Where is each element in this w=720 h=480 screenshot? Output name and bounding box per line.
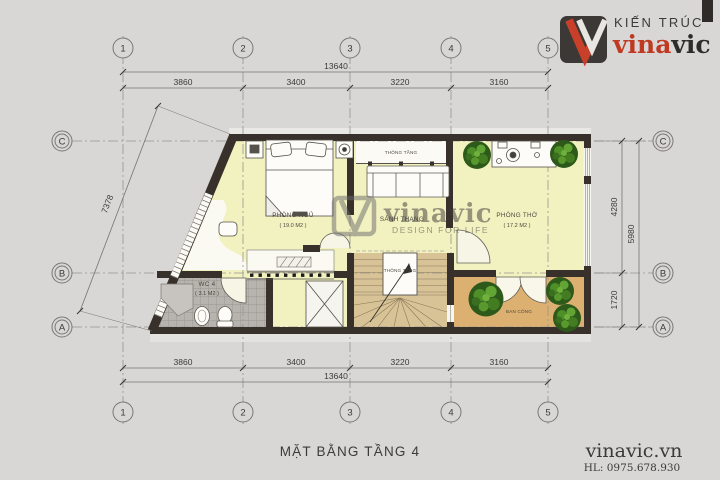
worship-area: ( 17.2 M2 ) — [503, 223, 530, 229]
wc-area: ( 3.1 M2 ) — [195, 291, 219, 297]
dim-total-top: 13640 — [324, 61, 348, 71]
toilet — [217, 307, 233, 328]
grid-col-5-top: 5 — [545, 44, 550, 55]
grid-row-c-right: C — [660, 137, 667, 148]
void-strip-railing — [356, 162, 446, 166]
footer-website: vinavic.vn — [585, 440, 683, 462]
nightstand-left — [246, 141, 263, 158]
grid-col-2-bottom: 2 — [240, 408, 245, 419]
dim-seg1-bottom: 3860 — [174, 357, 193, 367]
altar-table — [492, 141, 556, 167]
logo-brand-dark: vic — [670, 30, 710, 59]
sofa — [367, 166, 449, 197]
logo-brand-red: vina — [612, 30, 671, 59]
worship-label: PHÒNG THỜ — [496, 210, 538, 219]
footer-contact: vinavic.vn HL: 0975.678.930 — [584, 440, 683, 474]
dim-right-lower: 1720 — [609, 290, 619, 309]
dim-right-upper: 4280 — [609, 197, 619, 216]
planter-hatch — [277, 257, 311, 267]
bedroom-label: PHÒNG NGỦ — [272, 210, 314, 219]
corner-bar — [702, 0, 713, 22]
grid-row-b-left: B — [59, 269, 65, 280]
floor-plan-page: { "brand": { "tagline": "KIẾN TRÚC", "na… — [0, 0, 720, 480]
floor-plan-canvas: PHÒNG NGỦ ( 19.0 M2 ) SẢNH THANG PHÒNG T… — [0, 0, 720, 480]
nightstand-right — [336, 141, 353, 158]
bedroom-area: ( 19.0 M2 ) — [279, 223, 306, 229]
grid-row-a-right: A — [660, 323, 667, 334]
bed — [266, 140, 333, 216]
grid-row-b-right: B — [660, 269, 666, 280]
void-label-top: THÔNG TẦNG — [385, 149, 418, 155]
grid-col-1-bottom: 1 — [120, 408, 125, 419]
dim-seg4-top: 3160 — [490, 77, 509, 87]
dim-seg1-top: 3860 — [174, 77, 193, 87]
plant-icon — [463, 141, 491, 169]
grid-col-4-bottom: 4 — [448, 408, 453, 419]
grid-col-1-top: 1 — [120, 44, 125, 55]
plant-icon — [469, 282, 504, 317]
grid-col-5-bottom: 5 — [545, 408, 550, 419]
dim-seg2-top: 3400 — [287, 77, 306, 87]
drawing-title: MẶT BẰNG TẦNG 4 — [280, 444, 421, 459]
plant-icon — [553, 304, 581, 332]
vanity-table — [219, 222, 237, 236]
grid-row-c-left: C — [59, 137, 66, 148]
footer-hotline: HL: 0975.678.930 — [584, 462, 680, 474]
balcony-label: BAN CÔNG — [506, 308, 532, 314]
grid-col-3-top: 3 — [347, 44, 352, 55]
grid-row-a-left: A — [59, 323, 66, 334]
dim-seg4-bottom: 3160 — [490, 357, 509, 367]
dim-total-bottom: 13640 — [324, 371, 348, 381]
plant-icon — [546, 277, 574, 305]
void-label-stair: THÔNG TẦNG — [384, 267, 417, 273]
dim-seg2-bottom: 3400 — [287, 357, 306, 367]
dim-diagonal: 7378 — [99, 193, 115, 214]
dim-right-total: 5980 — [626, 224, 636, 243]
sink — [195, 307, 210, 326]
shaft-x-box — [306, 281, 343, 327]
stair-void-box — [383, 253, 417, 295]
header-logo: KIẾN TRÚC vinavic — [560, 0, 713, 63]
plant-icon — [550, 140, 578, 168]
dim-seg3-bottom: 3220 — [391, 357, 410, 367]
watermark-slogan: DESIGN FOR LIFE — [392, 225, 489, 235]
grid-col-2-top: 2 — [240, 44, 245, 55]
wc-label: WC 4 — [199, 281, 216, 288]
grid-col-3-bottom: 3 — [347, 408, 352, 419]
grid-col-4-top: 4 — [448, 44, 453, 55]
vinavic-logo-icon — [560, 16, 607, 63]
logo-brand-name: vinavic — [612, 30, 711, 59]
dim-seg3-top: 3220 — [391, 77, 410, 87]
logo-tagline: KIẾN TRÚC — [614, 15, 704, 30]
